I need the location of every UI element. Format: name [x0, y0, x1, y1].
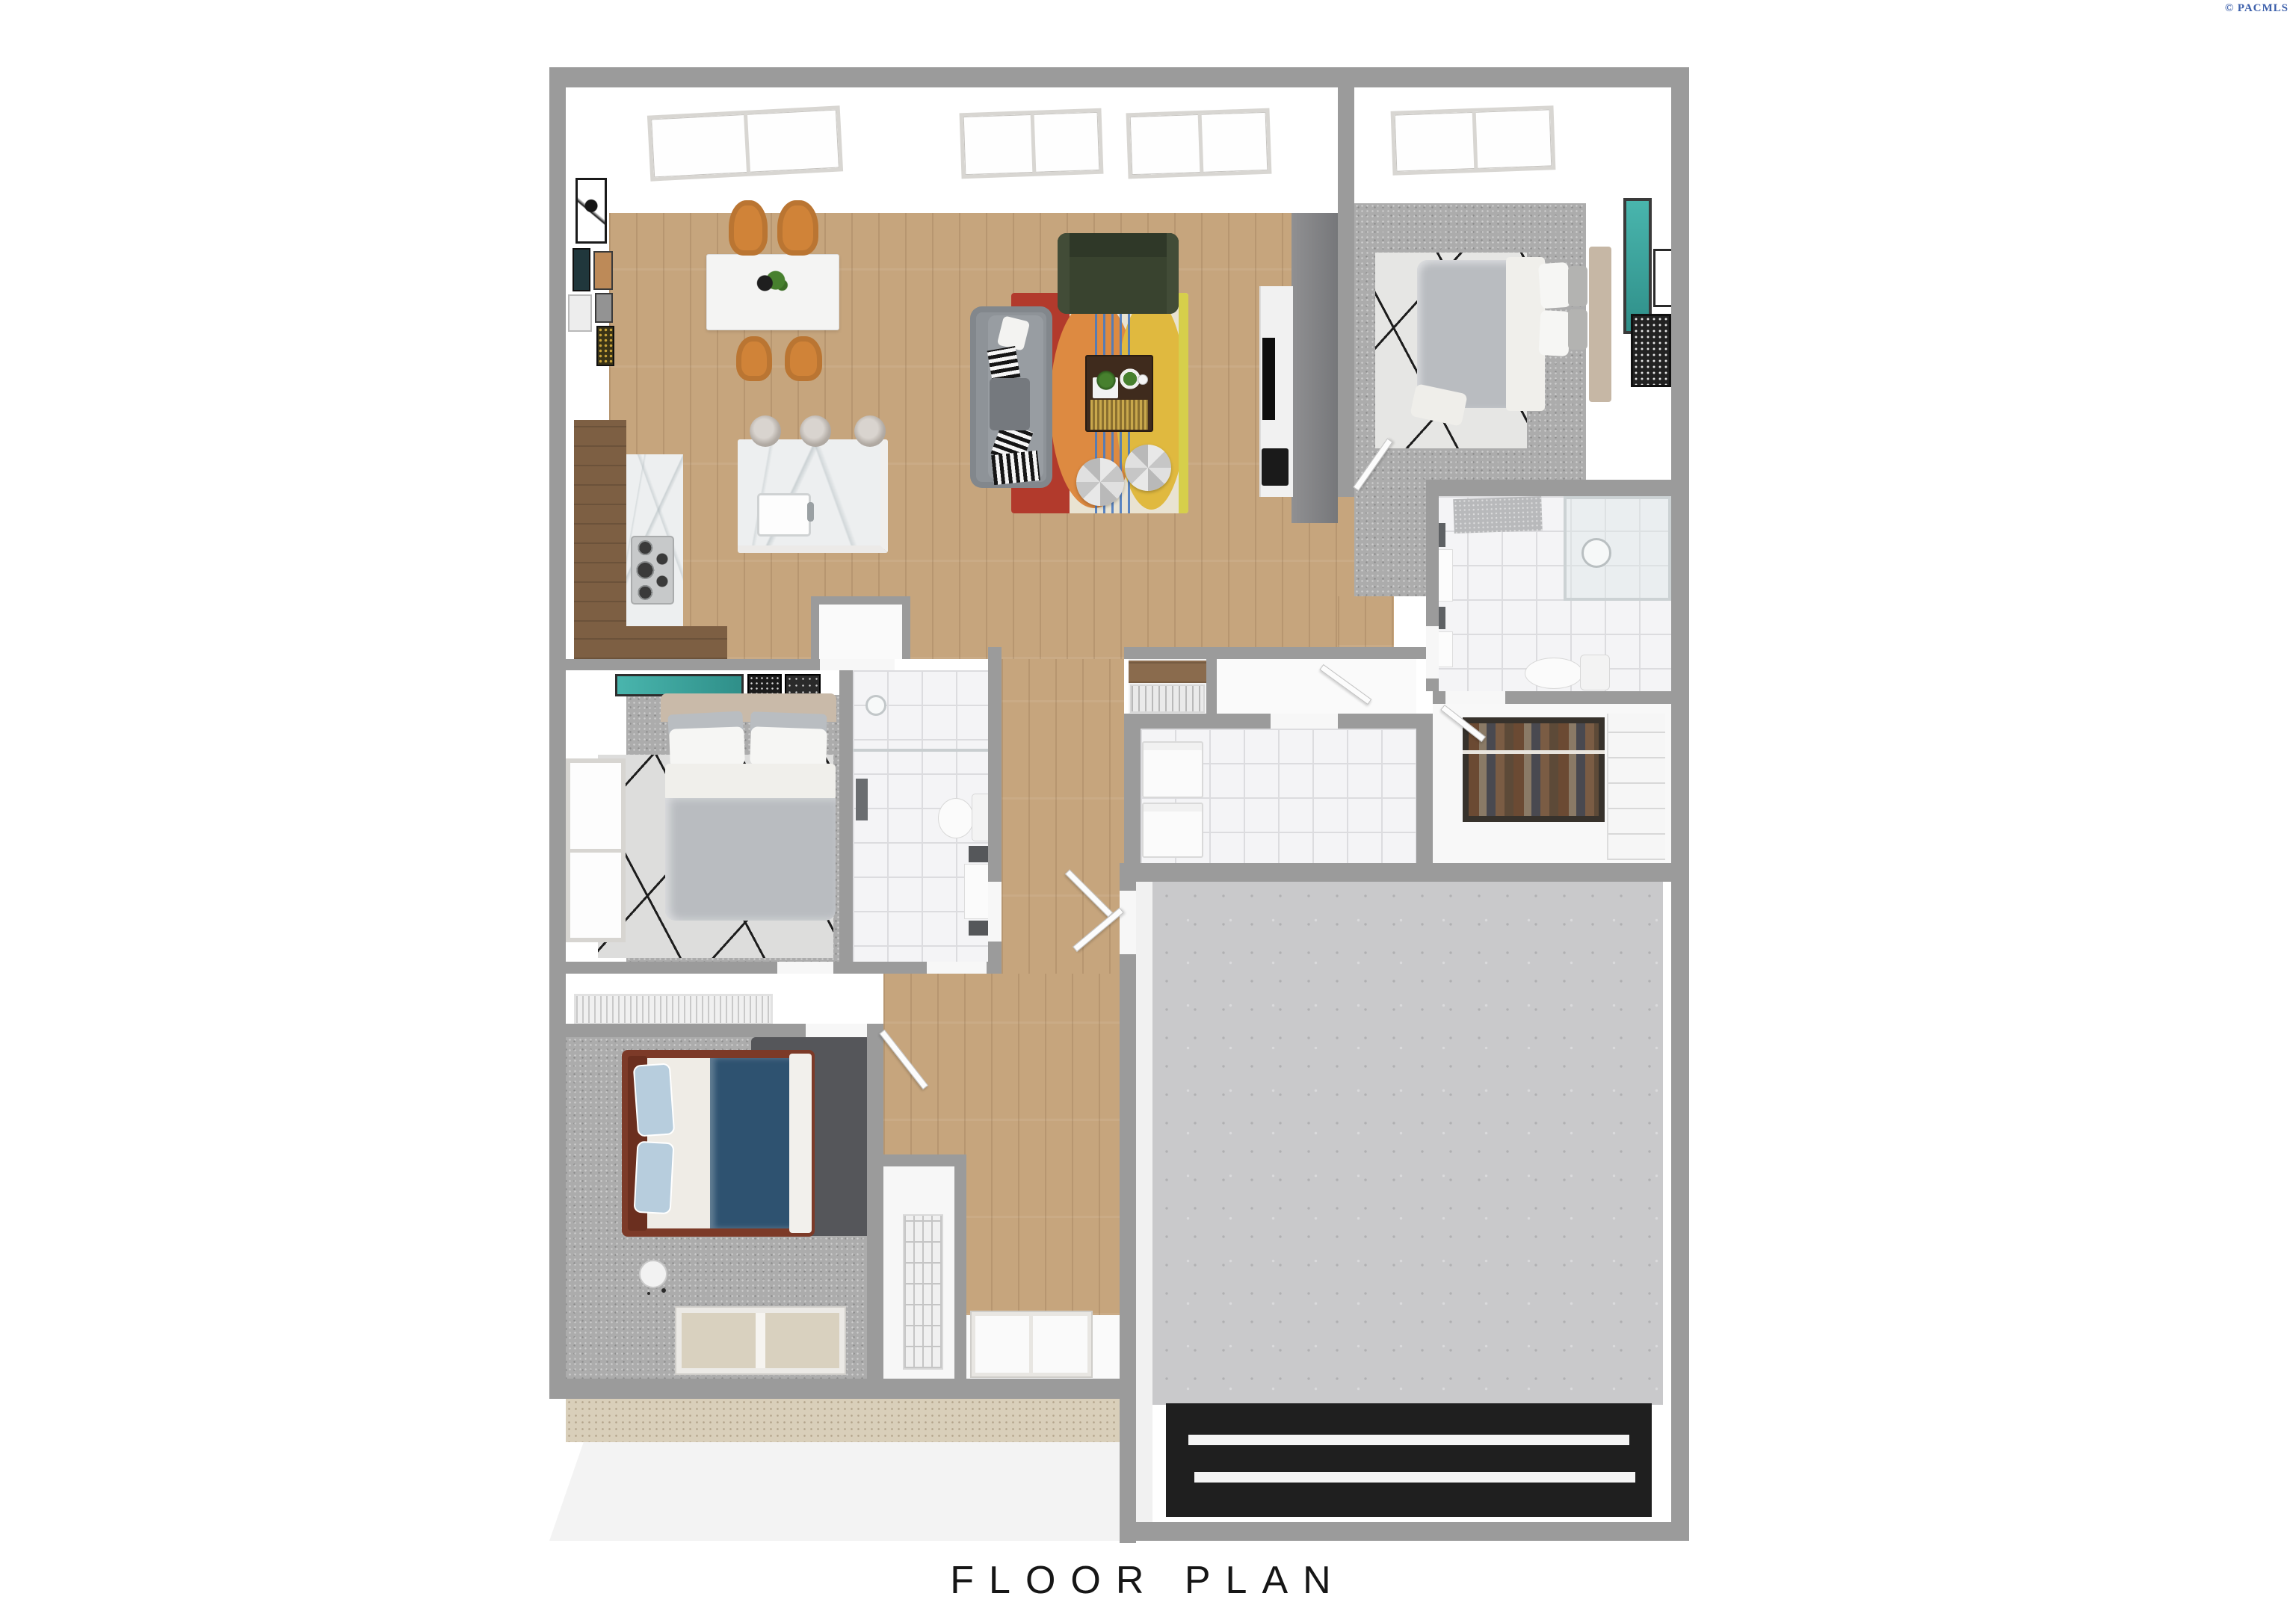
bar-stool [800, 415, 831, 447]
master-bed-pillow-gray [1568, 309, 1587, 350]
entry-floor [1217, 659, 1416, 714]
bedroom-2-pillow [750, 726, 827, 768]
wall-pantry-right [1206, 659, 1217, 714]
door-opening-bedroom2-hall [777, 962, 833, 974]
wall-garage-top [1120, 863, 1671, 882]
master-toilet-bowl [1525, 658, 1583, 689]
ensuite-toilet-bowl [938, 798, 974, 838]
bedroom-3-duvet-blue [710, 1058, 794, 1228]
coffee-table-cup [1138, 374, 1148, 385]
linen-closet-shelf [574, 994, 773, 1025]
door-opening-garage [1120, 891, 1136, 954]
table-centerpiece-plant [753, 268, 789, 296]
bedroom-3-blanket [789, 1054, 812, 1233]
television [1262, 338, 1275, 420]
gray-sofa [970, 306, 1052, 488]
door-opening-walkin [1445, 691, 1505, 704]
master-hall-carpet [1354, 484, 1430, 596]
door-opening-bedroom3 [806, 1024, 867, 1037]
wall-entry-top [1124, 647, 1433, 659]
wall-exterior-top [549, 67, 1689, 87]
skylight-living-2 [1126, 108, 1272, 179]
wall-garage-bottom [1120, 1522, 1689, 1541]
bedroom-2-pillow [669, 726, 745, 767]
island-sink [757, 493, 811, 537]
hallway-floor-upper [1002, 659, 1124, 994]
master-bed-pillow [1538, 262, 1571, 309]
loveseat-arm [1058, 233, 1070, 314]
skylight-divider [1031, 114, 1037, 173]
skylight-divider [1198, 114, 1204, 173]
bedroom-3-pillow-blue [633, 1063, 676, 1137]
bedroom-3-window [676, 1308, 845, 1373]
floor-lamp [639, 1260, 667, 1288]
closet-shelving [1607, 714, 1665, 860]
wall-master-bottom [1426, 480, 1671, 496]
coffee-table [1085, 355, 1153, 432]
gallery-frame-gold [596, 326, 614, 366]
shower-head [1581, 538, 1611, 568]
rug-pale-band [1179, 293, 1188, 513]
dining-chair [736, 336, 772, 381]
shower-enclosure [1564, 496, 1671, 601]
bedroom-2-sheet-fold [665, 764, 836, 801]
wall-laundry-left [1124, 729, 1141, 863]
master-bed-pillow-gray [1568, 266, 1587, 306]
dining-chair [785, 336, 822, 381]
floor-plan-scene [0, 0, 2296, 1623]
garage-concrete-floor [1152, 882, 1663, 1405]
gallery-frame-squiggle [575, 178, 607, 244]
washer [1142, 741, 1203, 798]
ensuite-glass-wall [853, 749, 988, 752]
kitchen-counter-bottom [574, 626, 727, 659]
garage-door-mat [1166, 1403, 1652, 1517]
wall-bedroom2-top [549, 659, 852, 670]
mat-stripe [1194, 1472, 1635, 1483]
dining-chair [729, 200, 768, 256]
door-opening-bedroom2 [820, 659, 895, 670]
master-bed-headboard [1589, 247, 1611, 402]
wall-closet3-top [867, 1154, 966, 1166]
ensuite-towel [856, 779, 868, 820]
gas-cooktop [631, 536, 674, 605]
door-opening-ensuite-hall [927, 962, 987, 974]
pantry-wire-shelf [1130, 684, 1205, 713]
bar-stool [854, 415, 886, 447]
wall-closet3-right [954, 1154, 966, 1379]
round-ottoman [1125, 445, 1171, 491]
back-door [972, 1312, 1091, 1376]
round-ottoman [1076, 458, 1124, 506]
driveway-patio [549, 1442, 1120, 1541]
door-opening-laundry [1271, 714, 1338, 729]
bath-vanity-counter [1453, 496, 1543, 534]
wall-master-left [1338, 67, 1354, 497]
coffee-table-plant [1096, 370, 1117, 391]
sofa-throw-striped [991, 451, 1040, 485]
closet-3-wire-shelf [903, 1214, 943, 1370]
wall-exterior-left [549, 67, 566, 1399]
copyright-watermark: © PACMLS [2225, 2, 2289, 15]
wall-garage-left [1120, 863, 1136, 1543]
caption-floor-plan: FLOOR PLAN [0, 1558, 2296, 1603]
door-divider [1029, 1316, 1033, 1373]
pantry-wood-shelf [1129, 661, 1206, 683]
sofa-pillow-striped [987, 346, 1021, 382]
master-toilet-tank [1580, 655, 1610, 690]
skylight-master [1391, 105, 1556, 176]
hanging-clothes [1469, 723, 1599, 816]
bedroom-3-pillow-blue [634, 1141, 675, 1214]
loveseat-arm [1167, 233, 1179, 314]
wall-laundry-right [1416, 729, 1433, 863]
bar-stool [750, 415, 781, 447]
skylight-divider [1472, 112, 1478, 169]
door-opening-ensuite [988, 882, 1002, 942]
skylight-dining [647, 105, 843, 181]
master-bed-pillow [1538, 310, 1570, 356]
gallery-frame-tan [593, 251, 613, 290]
skylight-living-1 [960, 108, 1104, 179]
wardrobe-opening [1463, 717, 1605, 822]
wall-bedroom3-right [867, 1024, 883, 1379]
console-speaker [1262, 448, 1289, 486]
wall-bedroom3-bottom [549, 1379, 1120, 1399]
master-frame-pattern [1631, 314, 1671, 387]
garage-wall-face [1136, 882, 1152, 1539]
loveseat-back [1058, 233, 1179, 257]
bedroom-2-window [566, 758, 626, 942]
tv-accent-wall [1291, 213, 1338, 523]
wall-exterior-right [1671, 67, 1689, 1541]
green-loveseat [1058, 233, 1179, 314]
wardrobe-shelf-line [1463, 750, 1605, 754]
dining-chair [777, 200, 818, 256]
mat-stripe [1188, 1435, 1629, 1445]
gallery-frame-dark-teal [573, 248, 590, 291]
door-opening-bath [1426, 626, 1439, 678]
skylight-divider [744, 114, 750, 173]
bedroom-2-duvet [665, 798, 836, 921]
dryer [1142, 803, 1203, 858]
kitchen-counter-left [574, 420, 626, 641]
gallery-frame-gray [595, 293, 613, 323]
gallery-frame-white [568, 294, 592, 332]
bedroom-2-door-alcove [811, 596, 910, 659]
sink-faucet [807, 502, 814, 522]
wall-bedroom2-right [839, 659, 853, 962]
coffee-table-shelf [1090, 400, 1148, 430]
window-divider [570, 849, 621, 853]
ensuite-shower-head [865, 695, 886, 716]
hall-wood-patch [1338, 596, 1394, 647]
porch-strip [566, 1399, 1120, 1442]
sofa-throw-gray [990, 378, 1030, 430]
